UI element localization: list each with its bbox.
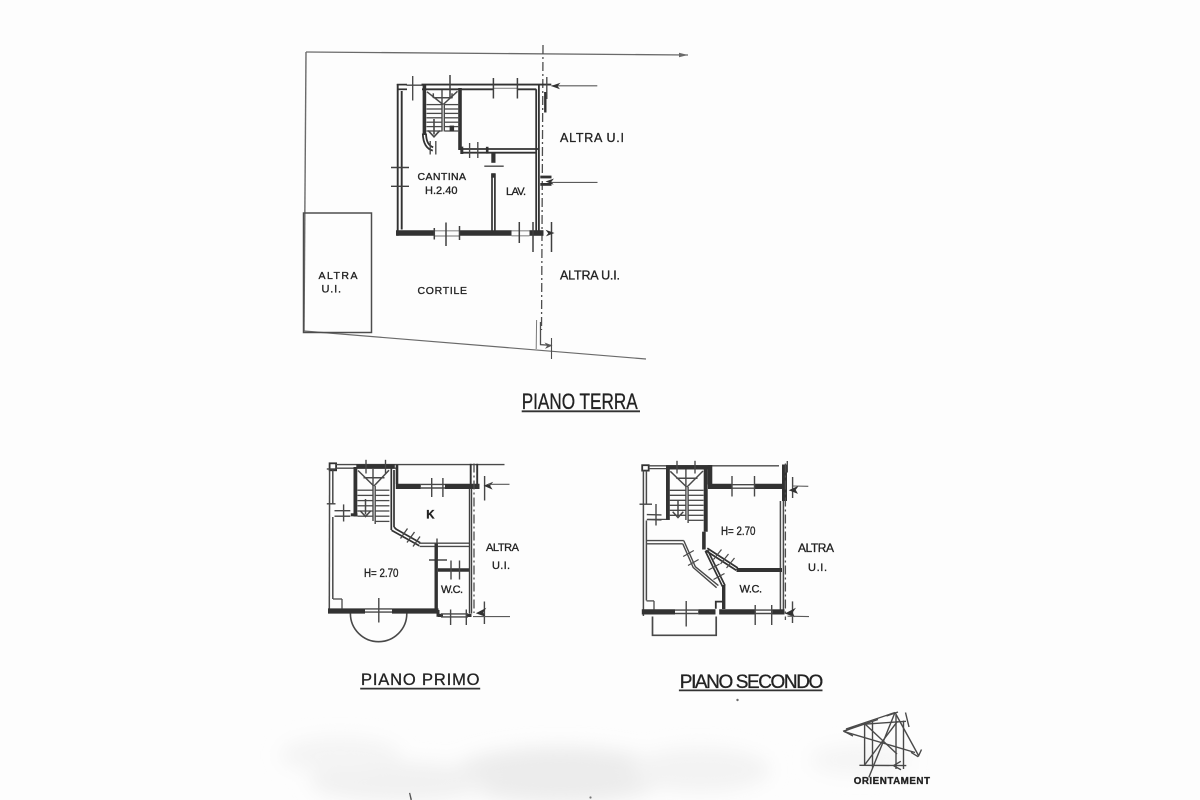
svg-text:U.I.: U.I. (492, 560, 510, 572)
svg-text:ALTRA: ALTRA (798, 541, 834, 555)
svg-text:ORIENTAMENT: ORIENTAMENT (854, 776, 930, 787)
svg-text:H= 2.70: H= 2.70 (364, 568, 399, 580)
svg-text:U.I.: U.I. (322, 283, 342, 295)
svg-text:K: K (426, 509, 435, 521)
svg-text:PIANO PRIMO: PIANO PRIMO (361, 671, 480, 689)
svg-text:ALTRA: ALTRA (486, 542, 520, 554)
svg-text:CORTILE: CORTILE (418, 285, 468, 297)
svg-text:W.C.: W.C. (740, 584, 763, 596)
svg-text:H= 2.70: H= 2.70 (721, 526, 756, 538)
svg-text:LAV.: LAV. (506, 186, 526, 198)
svg-text:ALTRA U.I.: ALTRA U.I. (560, 268, 620, 282)
svg-text:ALTRA U.I: ALTRA U.I (560, 131, 624, 145)
svg-text:W.C.: W.C. (441, 584, 463, 596)
svg-text:PIANO TERRA: PIANO TERRA (522, 389, 638, 414)
svg-text:U.I.: U.I. (808, 562, 827, 574)
svg-text:H.2.40: H.2.40 (425, 185, 458, 197)
svg-text:ALTRA: ALTRA (319, 270, 358, 282)
svg-text:CANTINA: CANTINA (418, 171, 467, 183)
